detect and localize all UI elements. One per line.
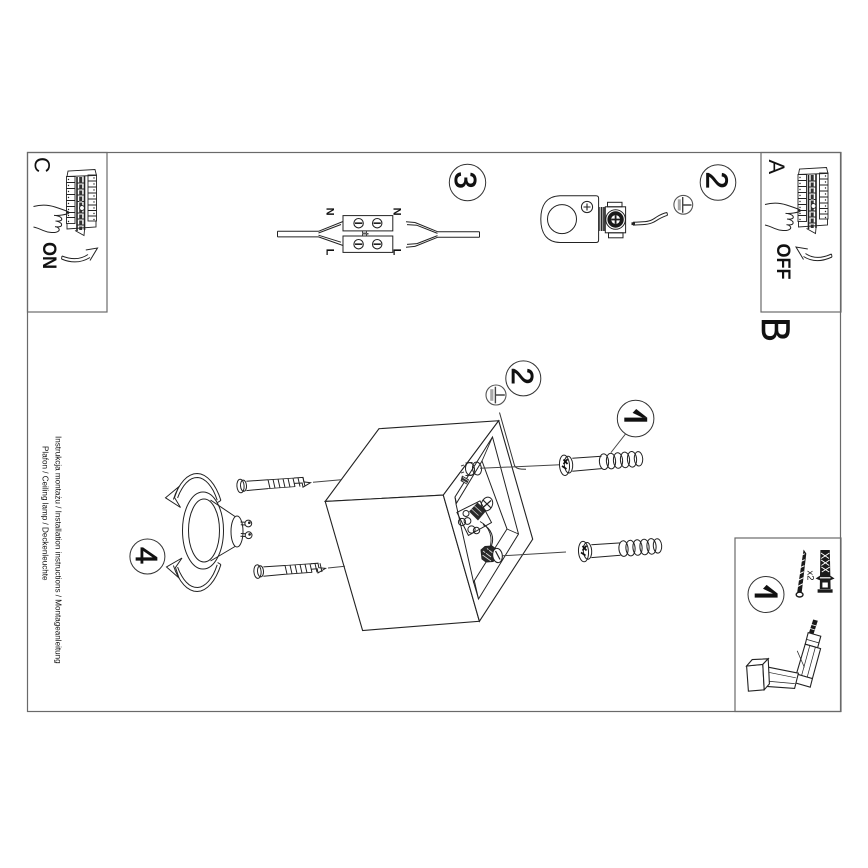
svg-text:Plafon / Ceiling lamp / Decken: Plafon / Ceiling lamp / Deckenleuchte (41, 446, 50, 581)
svg-text:A: A (764, 160, 789, 175)
svg-text:2: 2 (700, 172, 735, 189)
svg-text:L: L (390, 249, 402, 256)
svg-text:N: N (390, 208, 402, 216)
svg-text:ON: ON (39, 242, 61, 269)
svg-text:Instrukcja montażu / Installat: Instrukcja montażu / Installation instru… (54, 436, 63, 664)
svg-text:3: 3 (448, 172, 483, 189)
svg-text:4: 4 (129, 547, 164, 564)
svg-text:B: B (753, 317, 798, 342)
svg-text:L: L (324, 249, 336, 256)
svg-text:C: C (30, 157, 55, 173)
svg-text:x2: x2 (805, 571, 816, 581)
svg-text:2: 2 (505, 368, 540, 385)
svg-text:N: N (324, 208, 336, 216)
svg-text:OFF: OFF (773, 244, 795, 280)
